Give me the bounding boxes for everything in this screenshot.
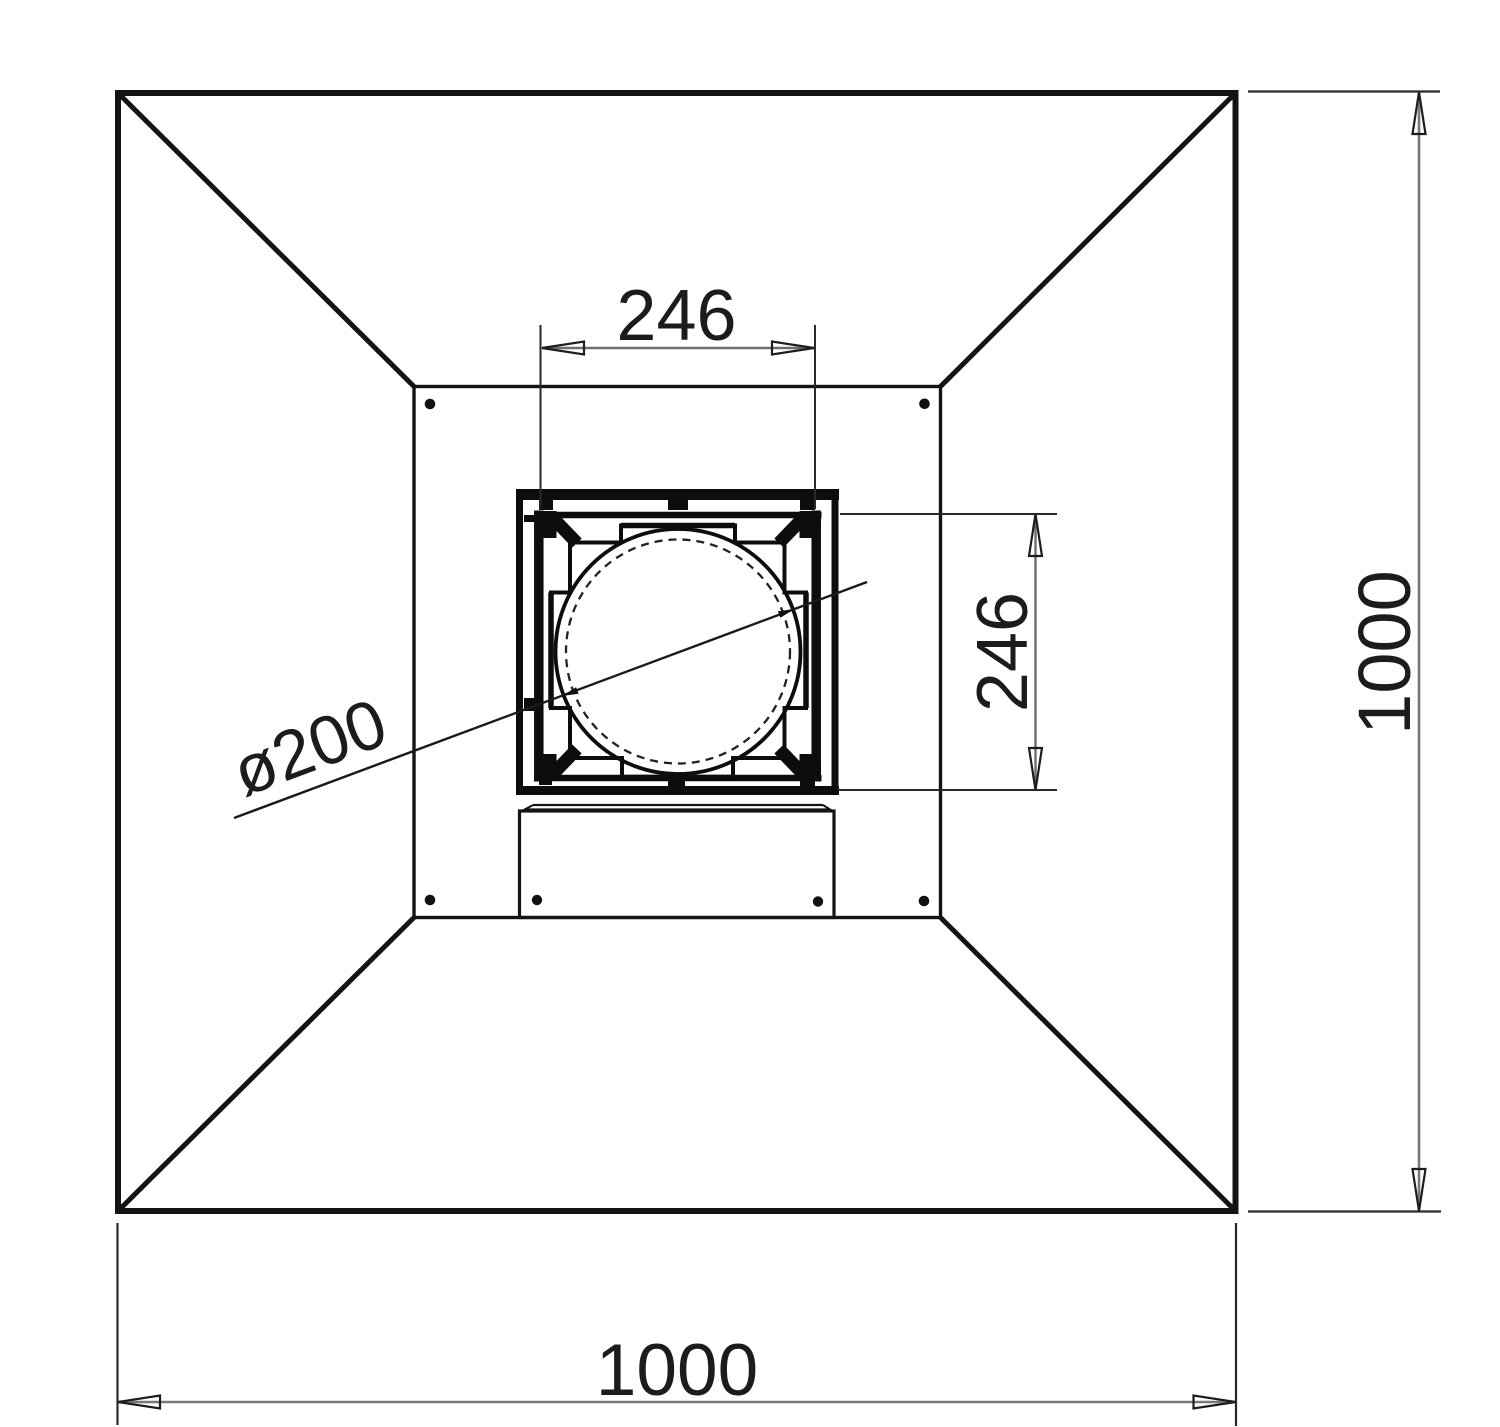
svg-text:246: 246 — [616, 276, 736, 356]
svg-text:1000: 1000 — [596, 1330, 758, 1411]
svg-text:246: 246 — [963, 592, 1043, 712]
svg-text:1000: 1000 — [1343, 570, 1426, 735]
